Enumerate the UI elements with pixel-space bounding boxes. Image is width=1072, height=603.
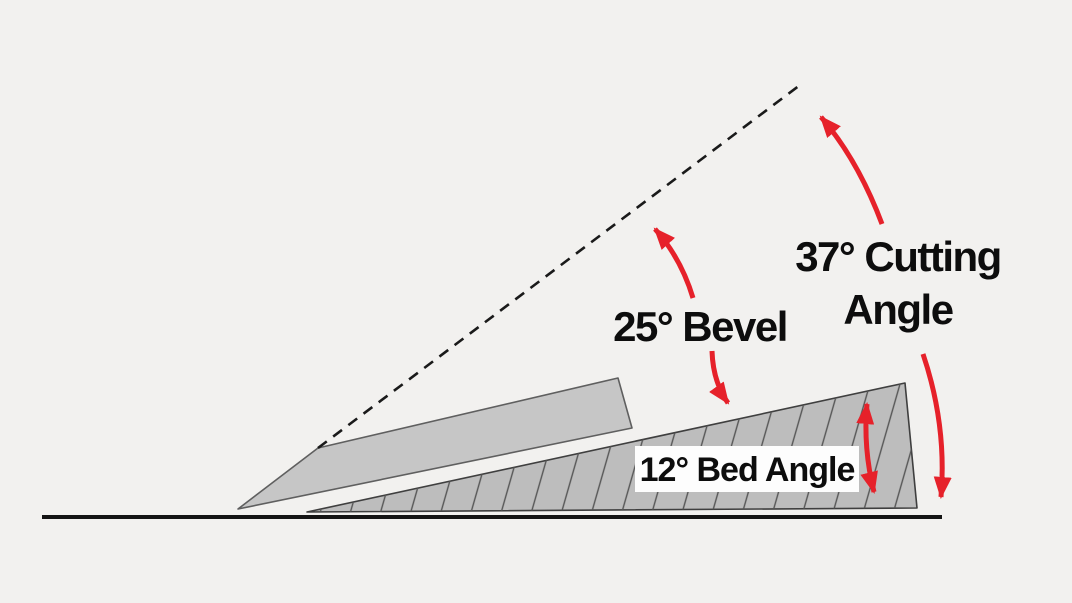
cutting-angle-arrow-upper — [821, 117, 882, 224]
bevel-label: 25° Bevel — [613, 303, 787, 350]
diagram-svg: 25° Bevel 37° Cutting Angle 12° Bed Angl… — [0, 0, 1072, 603]
bevel-arrow-lower — [712, 351, 728, 403]
cutting-angle-label-line1: 37° Cutting — [795, 233, 1001, 280]
cutting-angle-arrow-lower — [923, 354, 942, 497]
bevel-arrow-upper — [655, 229, 693, 298]
bed-angle-label: 12° Bed Angle — [640, 451, 855, 489]
angle-diagram: 25° Bevel 37° Cutting Angle 12° Bed Angl… — [0, 0, 1072, 603]
cutting-angle-label-line2: Angle — [843, 286, 952, 333]
